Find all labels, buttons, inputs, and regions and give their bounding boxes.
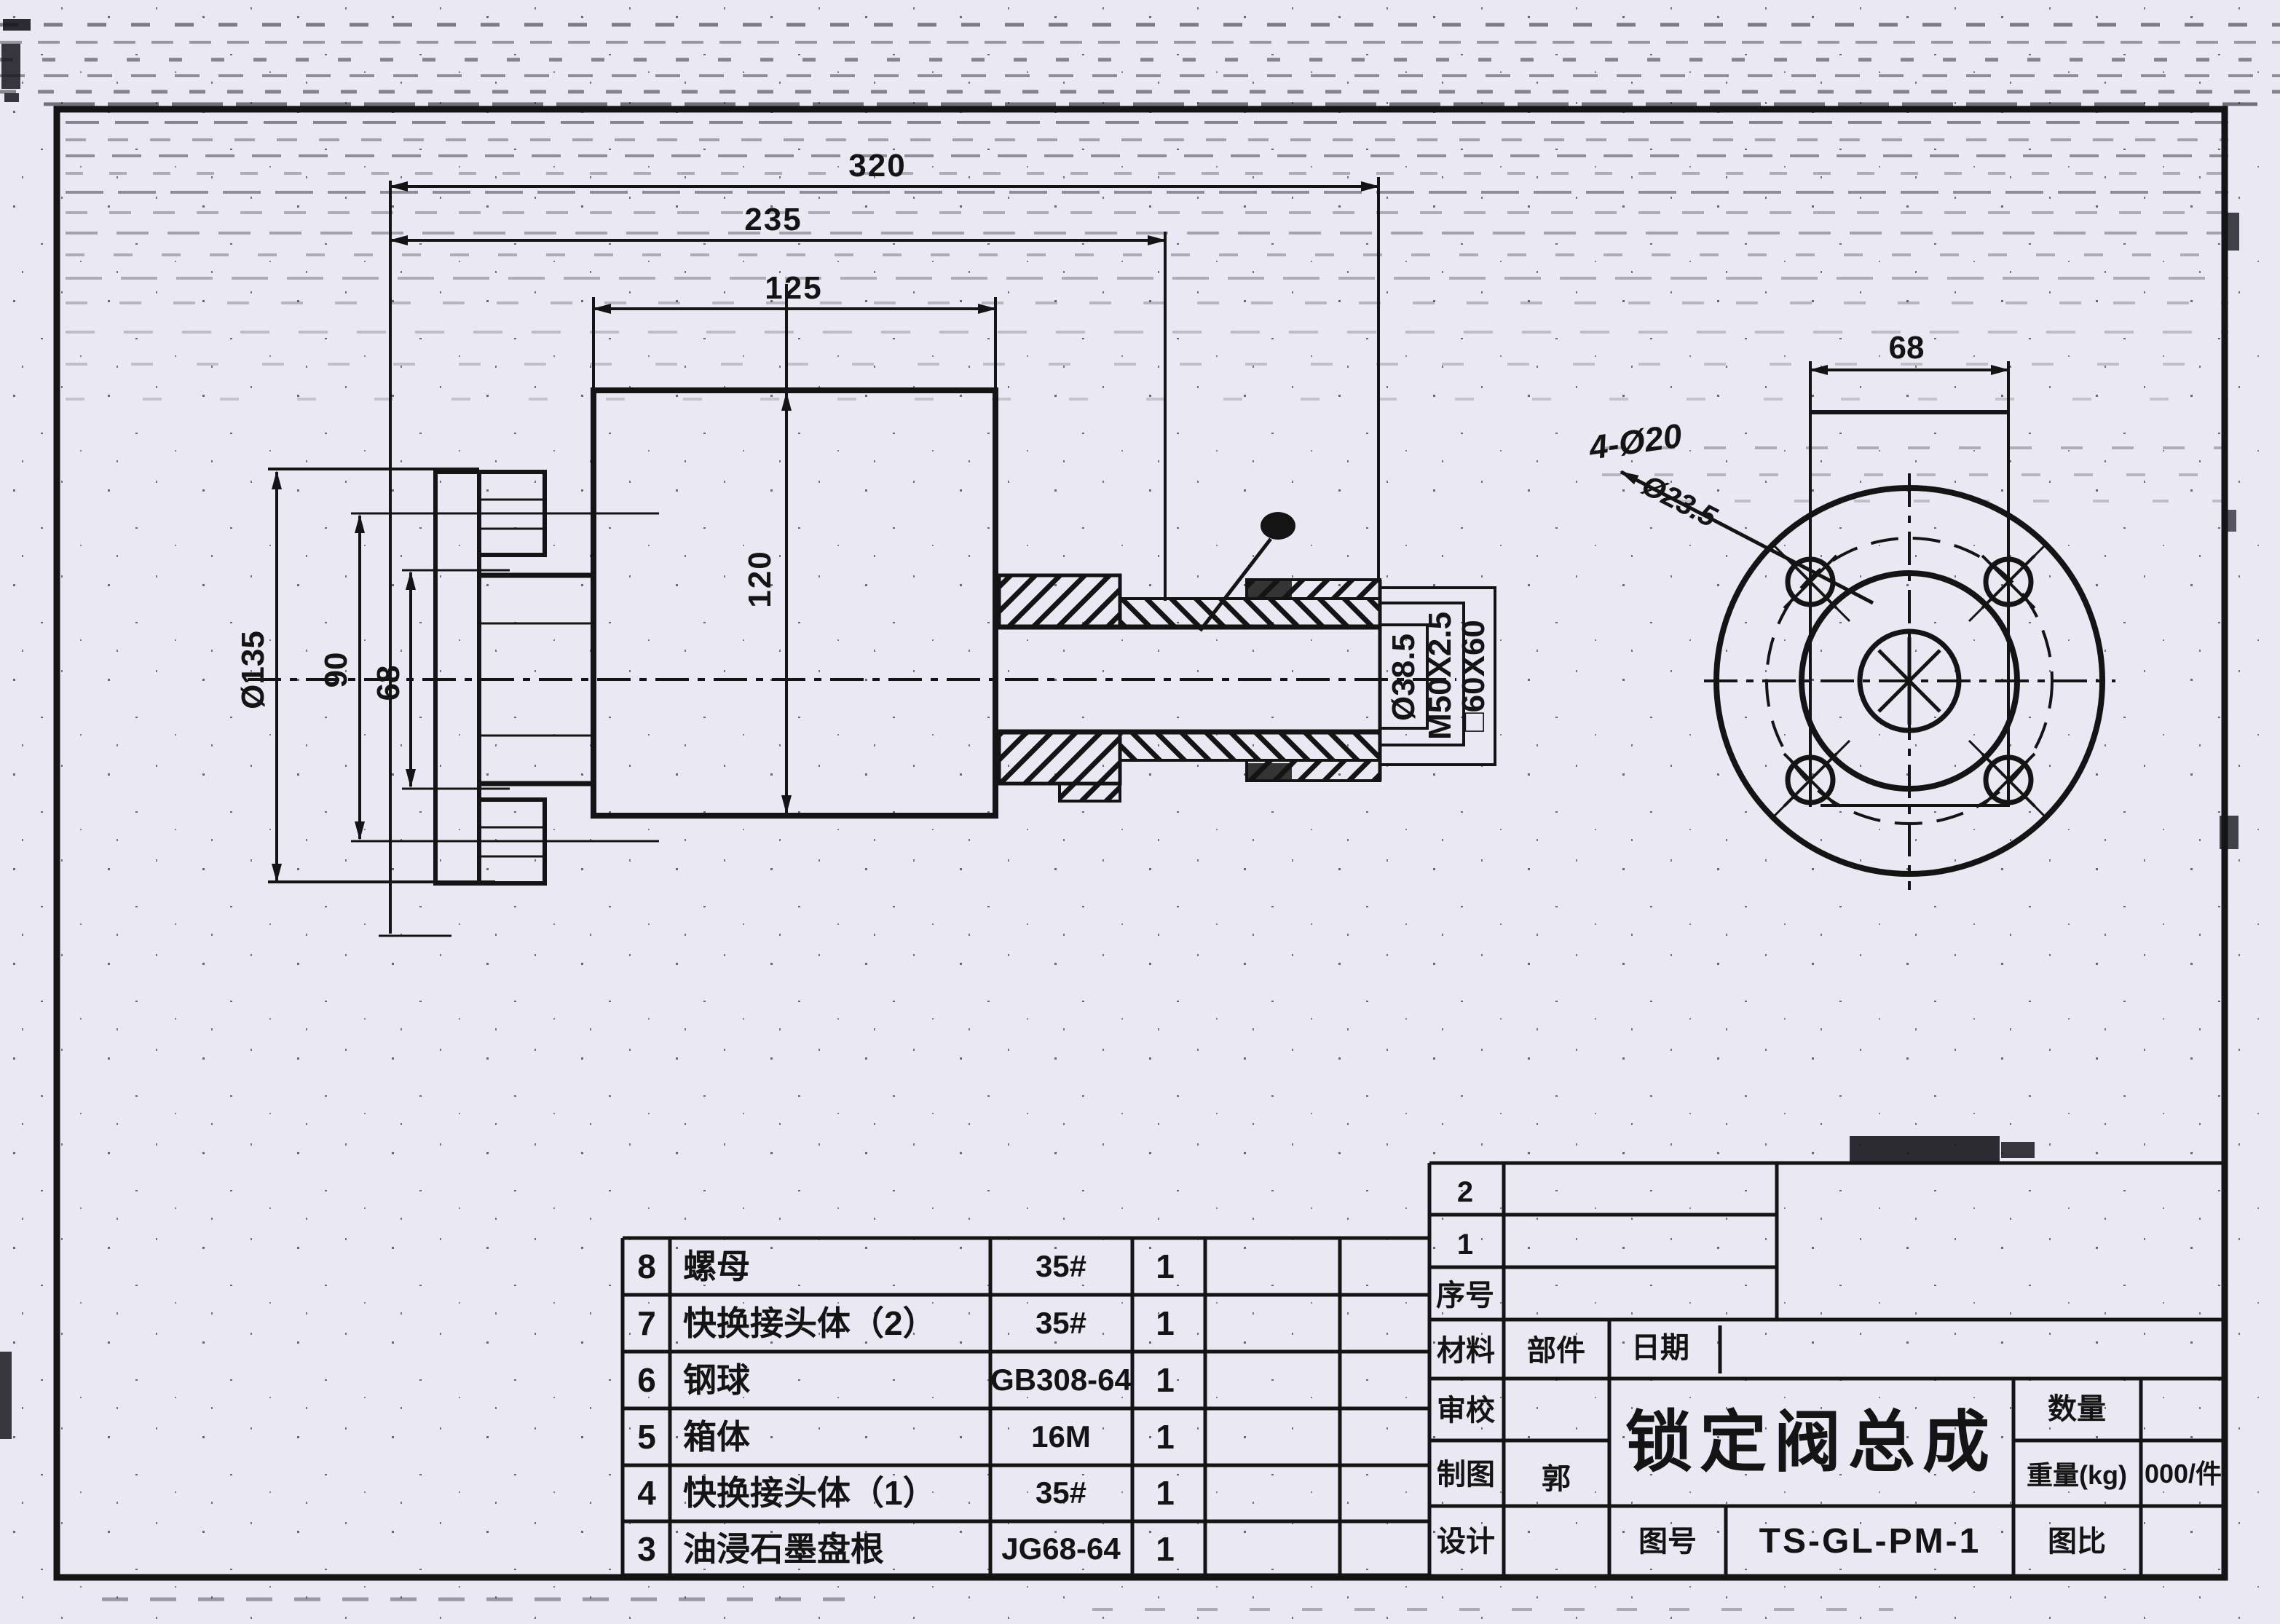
dim-bolt-spacing: 68 [1889, 330, 1925, 366]
part-no: 6 [637, 1361, 656, 1399]
part-name: 箱体 [683, 1418, 750, 1456]
drawing-no-label: 图号 [1638, 1526, 1697, 1558]
smudge-label [1261, 512, 1295, 540]
part-spec: JG68-64 [1001, 1532, 1121, 1566]
part-label: 部件 [1527, 1335, 1585, 1367]
seq-row1: 1 [1457, 1229, 1473, 1261]
dim-320: 320 [848, 148, 906, 184]
part-no: 3 [637, 1530, 656, 1568]
dim-120: 120 [742, 550, 778, 607]
engineering-drawing: 320 235 125 120 Ø38.5 M50X2.5 □60X60 [0, 0, 2280, 1624]
part-name: 油浸石墨盘根 [683, 1530, 884, 1568]
seq-label: 序号 [1436, 1280, 1494, 1312]
dim-hub: 68 [371, 666, 406, 701]
seq-row2: 2 [1457, 1176, 1473, 1208]
weight-label: 重量(kg) [2027, 1460, 2127, 1490]
scale-label: 图比 [2048, 1526, 2106, 1558]
part-no: 5 [637, 1418, 656, 1456]
drafter-name: 郭 [1542, 1463, 1571, 1495]
date-label: 日期 [1631, 1332, 1689, 1364]
part-qty: 1 [1156, 1474, 1175, 1512]
draft-label: 制图 [1437, 1459, 1495, 1491]
assembly-title: 锁定阀总成 [1625, 1406, 1997, 1480]
part-name: 钢球 [683, 1361, 751, 1399]
qty-label: 数量 [2048, 1393, 2106, 1425]
part-qty: 1 [1156, 1418, 1175, 1456]
dim-bolt-circle: 90 [318, 653, 354, 688]
part-qty: 1 [1156, 1304, 1175, 1342]
dim-flange-od: Ø135 [235, 631, 271, 709]
weight-value: 000/件 [2145, 1459, 2222, 1489]
part-qty: 1 [1156, 1530, 1175, 1568]
part-spec: 35# [1036, 1249, 1086, 1283]
design-label: 设计 [1437, 1526, 1495, 1558]
stem-label-square: □60X60 [1456, 620, 1491, 732]
part-no: 4 [637, 1474, 656, 1512]
stem-label-bore: Ø38.5 [1386, 634, 1421, 721]
part-qty: 1 [1156, 1361, 1175, 1399]
part-qty: 1 [1156, 1247, 1175, 1285]
part-no: 7 [637, 1304, 656, 1342]
material-label: 材料 [1437, 1335, 1495, 1367]
part-name: 快换接头体（1） [683, 1474, 936, 1512]
part-spec: 35# [1036, 1475, 1086, 1510]
part-spec: 16M [1031, 1419, 1091, 1454]
dim-235: 235 [744, 202, 802, 237]
part-no: 8 [637, 1247, 656, 1285]
part-name: 快换接头体（2） [683, 1304, 936, 1342]
drawing-sheet: 320 235 125 120 Ø38.5 M50X2.5 □60X60 [0, 0, 2280, 1624]
drawing-no: TS-GL-PM-1 [1759, 1522, 1981, 1561]
dim-125: 125 [765, 270, 822, 306]
check-label: 审校 [1437, 1395, 1495, 1427]
part-name: 螺母 [683, 1247, 750, 1285]
stem-label-thread: M50X2.5 [1422, 612, 1458, 740]
part-spec: GB308-64 [990, 1363, 1132, 1397]
part-spec: 35# [1036, 1306, 1086, 1340]
